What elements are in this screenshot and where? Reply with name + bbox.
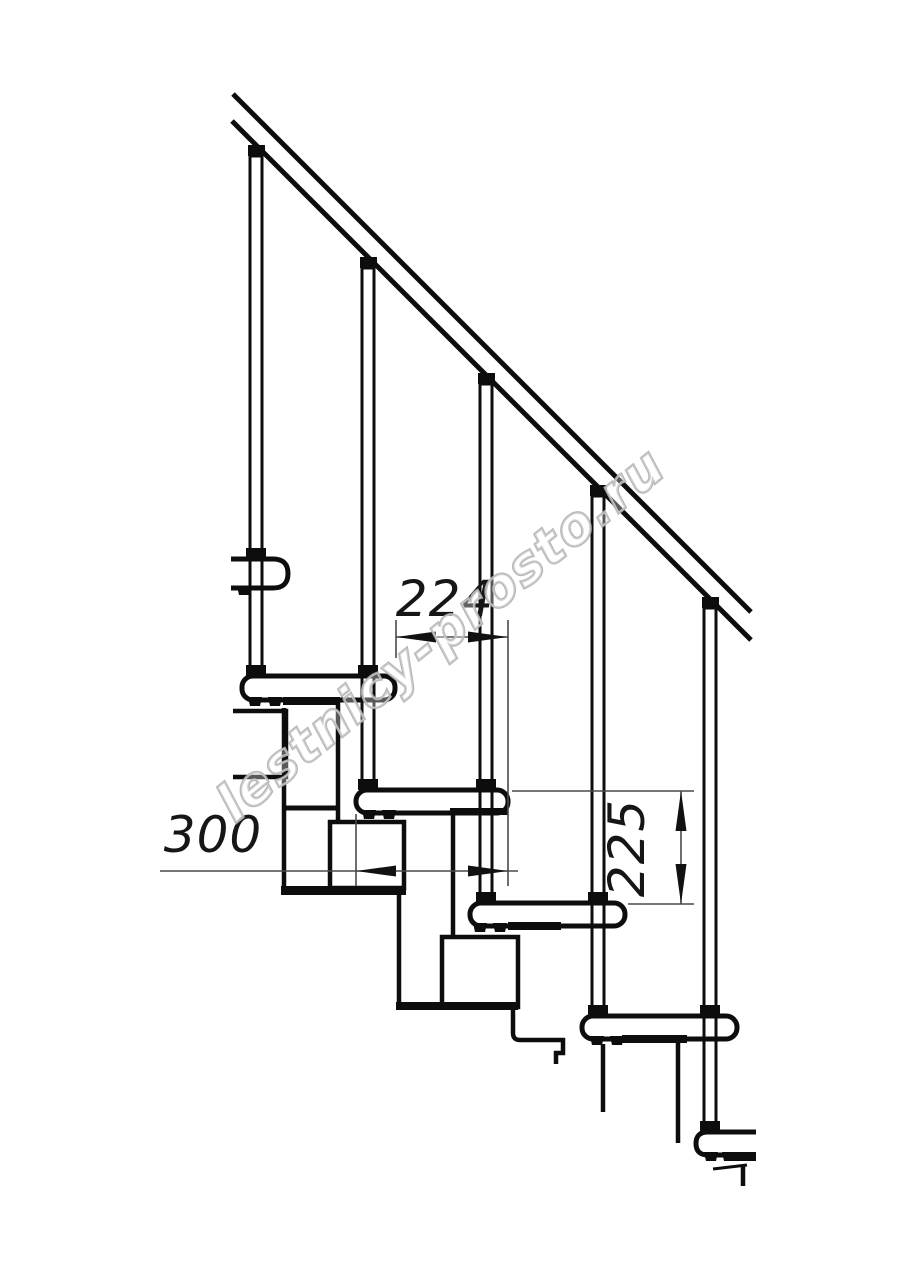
staircase-elevation-drawing: 224 300 225 lestnicy-prosto.ru [0,0,914,1280]
baluster-1 [246,145,266,676]
dim-225-label: 225 [598,799,656,897]
baluster-5-base [700,1121,720,1132]
tread-2-foot-a [362,810,376,819]
module-box-2 [330,822,404,888]
baluster-4-tube [592,496,604,1016]
tread-1-foot-b [268,697,282,706]
tread-5 [696,1132,756,1155]
baluster-3-rail-cap [478,373,495,384]
baluster-2-base [358,779,378,790]
baluster-3-tube [480,384,492,903]
tread-3-flange [508,922,561,930]
watermark-text: lestnicy-prosto.ru [205,436,677,834]
module-box-3 [442,937,518,1007]
module-break-step [513,1008,563,1064]
tread-4-foot-b [610,1036,624,1045]
baluster-3-collar [476,779,496,790]
baluster-2-rail-cap [360,257,377,268]
baluster-1-base [246,665,266,676]
tread-4-flange [622,1035,687,1043]
baluster-5-collar [700,1005,720,1016]
staircase-drawing-canvas: 224 300 225 lestnicy-prosto.ru [0,0,914,1280]
baluster-5-rail-cap [702,597,719,608]
module-box-2-flange [281,886,406,895]
tread-2-foot-b [382,810,396,819]
baluster-1-rail-cap [248,145,265,156]
baluster-5 [700,597,720,1132]
tread-3-foot-a [473,923,487,932]
tread-4-foot-a [590,1036,604,1045]
dim-300-arrow-right [468,866,508,877]
tread-5-flange [734,1152,756,1161]
baluster-4-base [588,1005,608,1016]
dimension-225: 225 [512,791,694,904]
dim-225-arrow-up [676,791,687,831]
tread-5-foot-b [722,1152,736,1161]
tread-3-foot-b [493,923,507,932]
baluster-3-base [476,892,496,903]
module-box-3-flange [396,1002,518,1010]
tread-5-foot-a [704,1152,718,1161]
tread-1-foot-a [248,697,262,706]
baluster-4 [588,485,608,1016]
baluster-1-collar [246,548,266,559]
baluster-1-tube [250,156,262,676]
dim-225-arrow-down [676,864,687,904]
baluster-5-tube [704,608,716,1132]
tread-0 [231,559,288,588]
